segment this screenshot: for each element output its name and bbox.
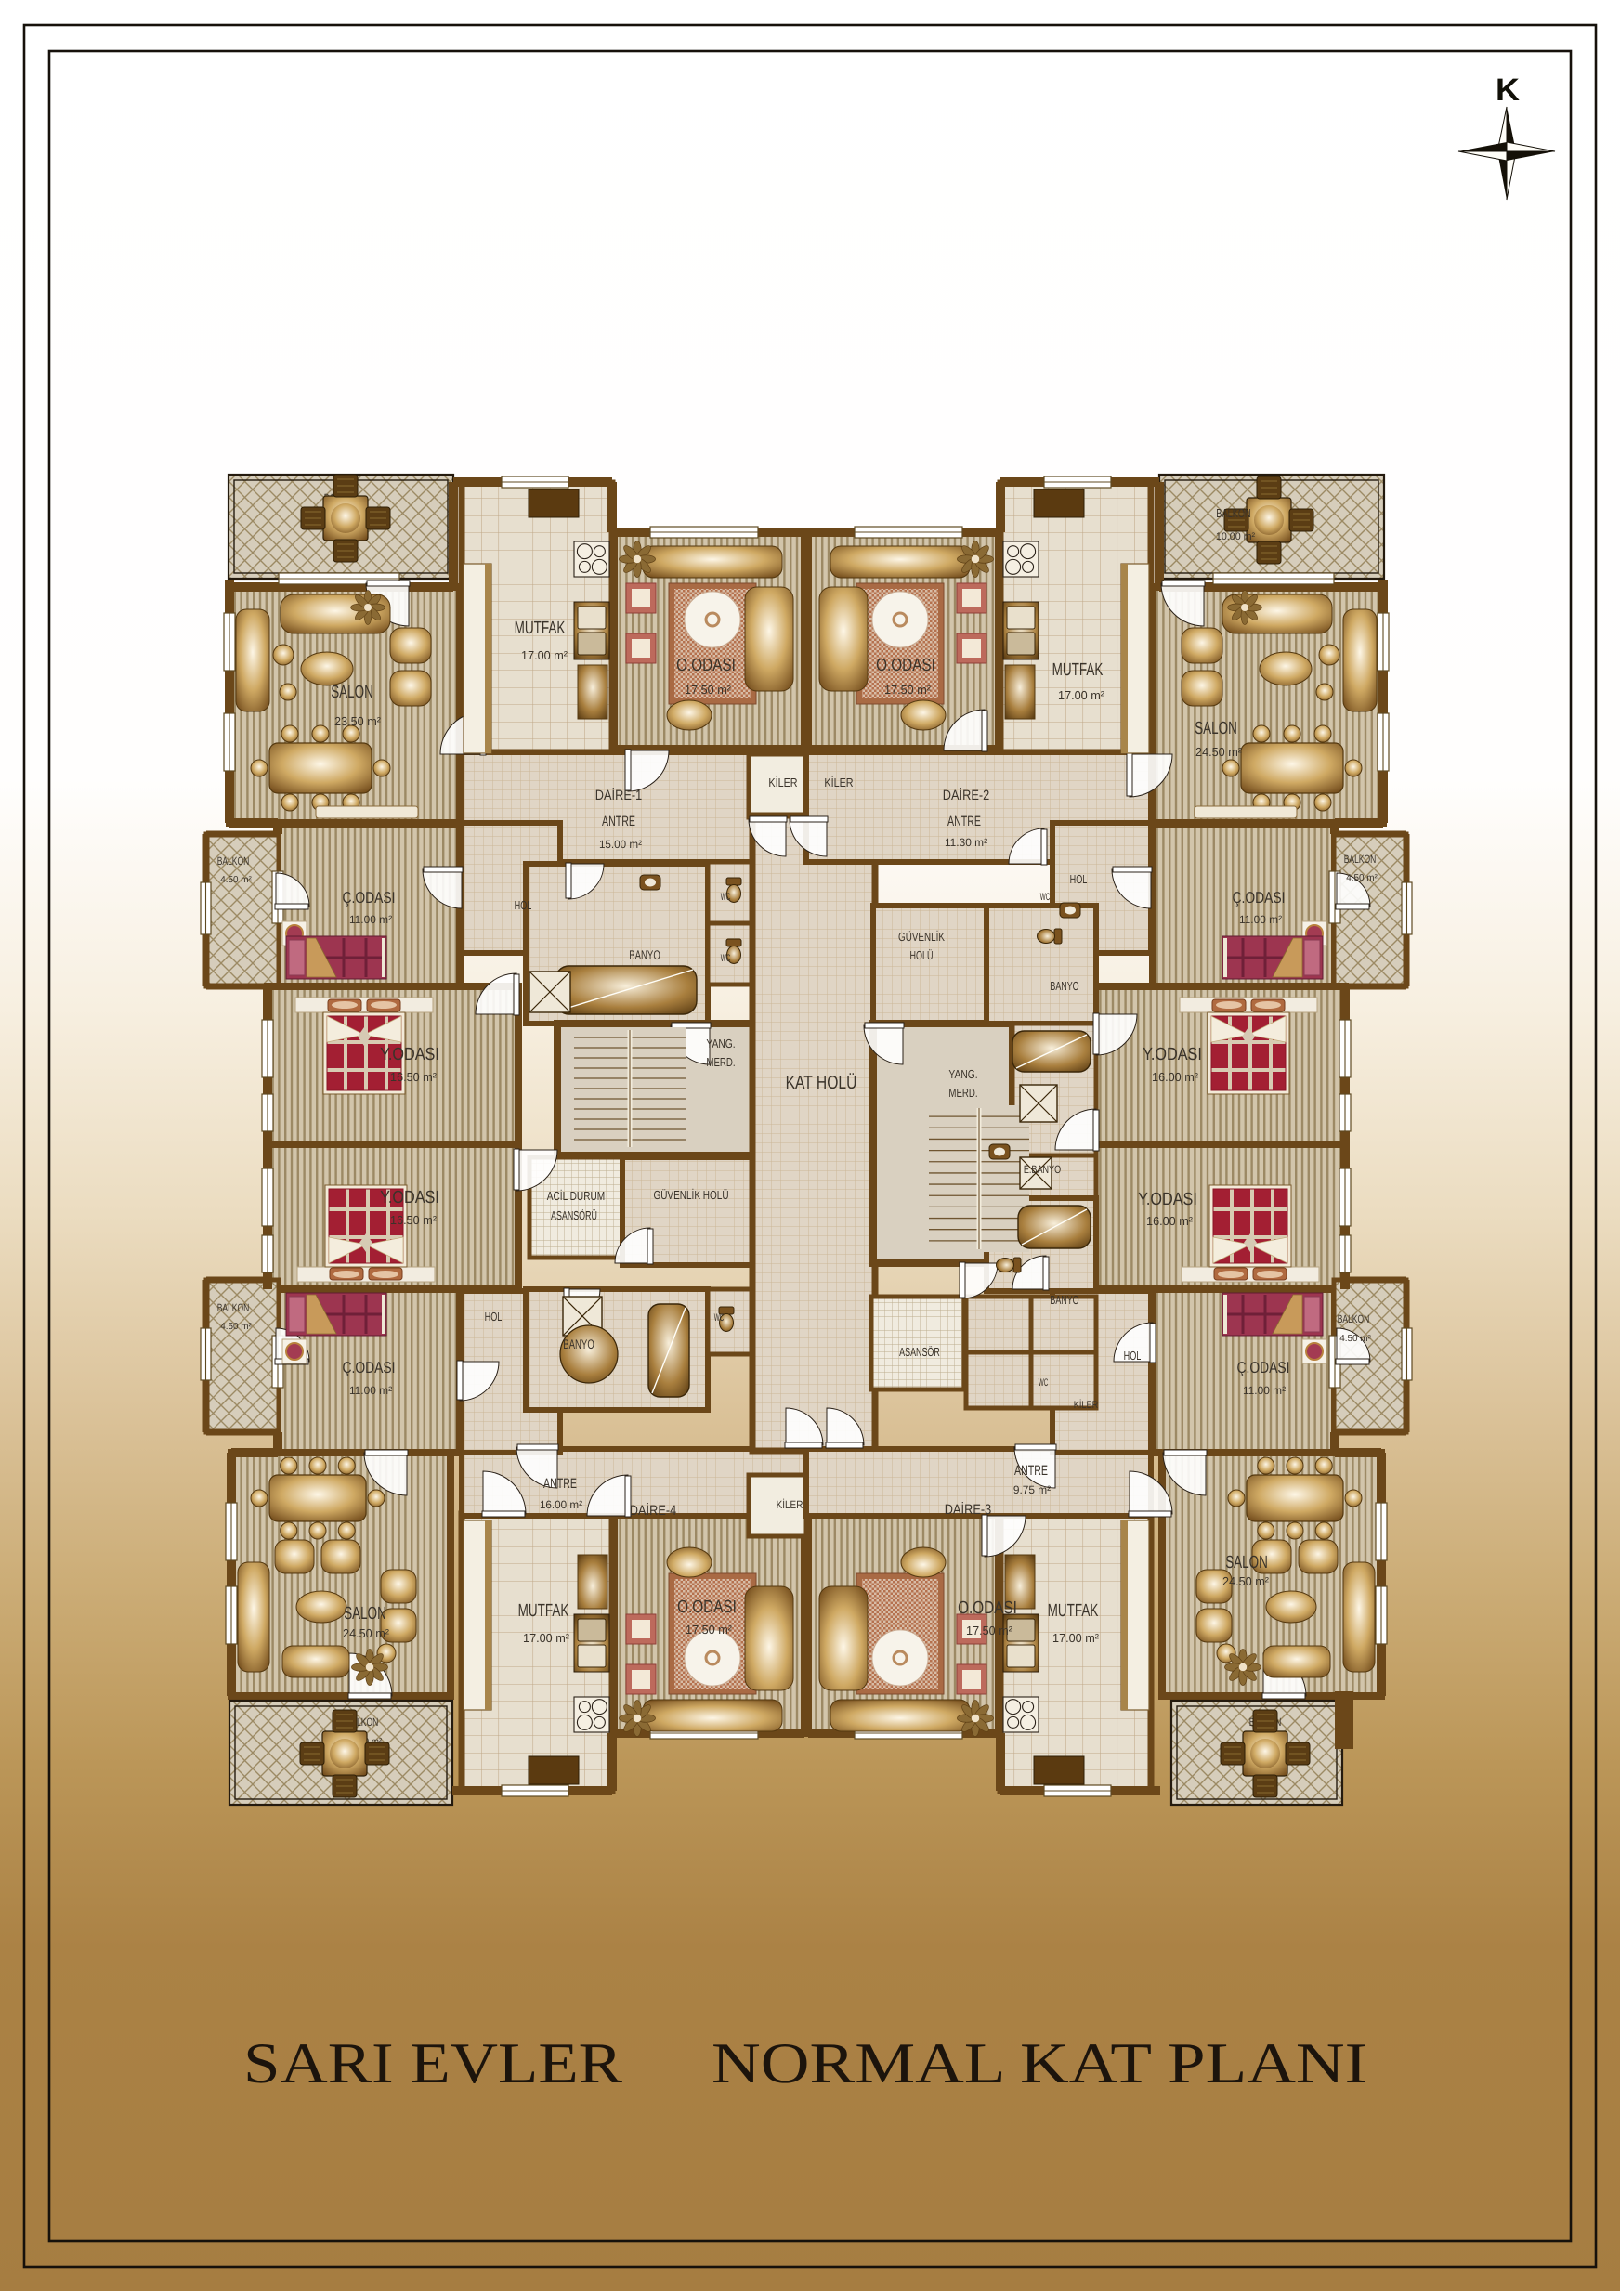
- svg-text:17.00 m²: 17.00 m²: [1058, 688, 1105, 702]
- svg-text:O.ODASI: O.ODASI: [876, 656, 935, 675]
- svg-text:17.50 m²: 17.50 m²: [686, 1623, 733, 1637]
- svg-text:ANTRE: ANTRE: [1014, 1463, 1048, 1479]
- svg-text:17.00 m²: 17.00 m²: [523, 1631, 570, 1645]
- svg-text:DAİRE-1: DAİRE-1: [595, 787, 642, 803]
- svg-text:4.50 m²: 4.50 m²: [1346, 873, 1378, 883]
- svg-text:BANYO: BANYO: [563, 1337, 594, 1351]
- svg-text:O.ODASI: O.ODASI: [958, 1598, 1017, 1618]
- svg-text:Y.ODASI: Y.ODASI: [380, 1045, 439, 1064]
- svg-text:BALKON: BALKON: [1338, 1312, 1370, 1325]
- svg-text:MERD.: MERD.: [948, 1086, 977, 1100]
- svg-text:4.50 m²: 4.50 m²: [1339, 1334, 1371, 1344]
- svg-text:17.00 m²: 17.00 m²: [1052, 1631, 1100, 1645]
- svg-text:11.30 m²: 11.30 m²: [945, 836, 987, 849]
- svg-text:4.50 m²: 4.50 m²: [220, 875, 252, 885]
- svg-text:HOLÜ: HOLÜ: [910, 948, 934, 962]
- svg-text:BALKON: BALKON: [217, 1301, 250, 1314]
- svg-text:4.50 m²: 4.50 m²: [220, 1322, 252, 1332]
- svg-text:HOL: HOL: [1124, 1349, 1142, 1363]
- svg-text:11.00 m²: 11.00 m²: [349, 1384, 392, 1397]
- svg-text:KAT HOLÜ: KAT HOLÜ: [786, 1073, 857, 1093]
- svg-text:MUTFAK: MUTFAK: [1048, 1601, 1099, 1621]
- svg-text:HOL: HOL: [485, 1310, 503, 1324]
- svg-text:BANYO: BANYO: [1050, 1293, 1078, 1307]
- svg-text:16.00 m²: 16.00 m²: [1146, 1214, 1194, 1228]
- svg-text:E.BANYO: E.BANYO: [1024, 1163, 1061, 1176]
- svg-text:Ç.ODASI: Ç.ODASI: [342, 1359, 395, 1376]
- svg-text:11.00 m²: 11.00 m²: [1243, 1384, 1286, 1397]
- svg-text:BALKON: BALKON: [1344, 853, 1377, 866]
- svg-text:Ç.ODASI: Ç.ODASI: [1236, 1359, 1289, 1376]
- svg-text:ASANSÖRÜ: ASANSÖRÜ: [551, 1208, 597, 1222]
- svg-text:24.50 m²: 24.50 m²: [1222, 1574, 1270, 1588]
- svg-text:BANYO: BANYO: [629, 947, 660, 962]
- svg-text:16.00 m²: 16.00 m²: [1152, 1070, 1199, 1084]
- svg-text:SALON: SALON: [1225, 1553, 1268, 1572]
- svg-text:MERD.: MERD.: [706, 1055, 735, 1069]
- svg-text:17.00 m²: 17.00 m²: [521, 648, 568, 662]
- svg-text:BALKON: BALKON: [217, 854, 250, 868]
- svg-text:KİLER: KİLER: [768, 776, 797, 789]
- svg-text:WC: WC: [721, 892, 731, 903]
- svg-text:MUTFAK: MUTFAK: [518, 1601, 569, 1621]
- svg-text:10.00 m²: 10.00 m²: [1216, 531, 1256, 542]
- svg-text:11.00 m²: 11.00 m²: [1239, 913, 1282, 926]
- svg-text:GÜVENLİK HOLÜ: GÜVENLİK HOLÜ: [653, 1188, 728, 1202]
- svg-text:9.75 m²: 9.75 m²: [1013, 1483, 1051, 1496]
- svg-text:YANG.: YANG.: [706, 1037, 735, 1050]
- svg-text:24.50 m²: 24.50 m²: [343, 1626, 390, 1640]
- svg-text:Y.ODASI: Y.ODASI: [380, 1188, 439, 1207]
- svg-text:K: K: [1496, 72, 1520, 108]
- svg-text:O.ODASI: O.ODASI: [677, 1598, 737, 1617]
- svg-text:DAİRE-3: DAİRE-3: [945, 1501, 991, 1518]
- svg-text:Y.ODASI: Y.ODASI: [1143, 1045, 1202, 1064]
- svg-text:YANG.: YANG.: [948, 1067, 977, 1081]
- svg-text:DAİRE-4: DAİRE-4: [630, 1502, 676, 1519]
- svg-text:SALON: SALON: [1195, 719, 1237, 738]
- svg-text:11.00 m²: 11.00 m²: [349, 913, 392, 926]
- svg-text:ACİL DURUM: ACİL DURUM: [547, 1189, 605, 1203]
- svg-text:16.50 m²: 16.50 m²: [390, 1070, 438, 1084]
- svg-text:BANYO: BANYO: [1050, 979, 1078, 993]
- svg-text:17.50 m²: 17.50 m²: [966, 1624, 1013, 1637]
- svg-text:NORMAL KAT PLANI: NORMAL KAT PLANI: [712, 2032, 1367, 2095]
- svg-text:Y.ODASI: Y.ODASI: [1138, 1190, 1197, 1209]
- svg-text:17.50 m²: 17.50 m²: [884, 683, 932, 697]
- svg-text:HOL: HOL: [515, 898, 532, 912]
- svg-text:MUTFAK: MUTFAK: [1052, 660, 1104, 680]
- svg-text:WC: WC: [1040, 892, 1051, 903]
- svg-text:ANTRE: ANTRE: [602, 814, 635, 829]
- svg-text:24.50 m²: 24.50 m²: [1195, 745, 1243, 759]
- svg-text:O.ODASI: O.ODASI: [676, 656, 736, 675]
- svg-text:ANTRE: ANTRE: [947, 814, 981, 829]
- svg-text:GÜVENLİK: GÜVENLİK: [898, 930, 945, 944]
- svg-text:ANTRE: ANTRE: [543, 1476, 577, 1492]
- svg-text:23.50 m²: 23.50 m²: [334, 714, 382, 728]
- svg-text:Ç.ODASI: Ç.ODASI: [1232, 889, 1285, 907]
- svg-text:16.00 m²: 16.00 m²: [540, 1498, 582, 1511]
- svg-text:17.50 m²: 17.50 m²: [685, 683, 732, 697]
- svg-text:MUTFAK: MUTFAK: [515, 619, 566, 638]
- svg-text:KİLER: KİLER: [1074, 1399, 1098, 1411]
- svg-text:SALON: SALON: [344, 1604, 386, 1624]
- svg-text:WC: WC: [1039, 1377, 1049, 1389]
- svg-text:WC: WC: [721, 953, 731, 964]
- svg-text:BALKON: BALKON: [1216, 506, 1250, 520]
- svg-text:KİLER: KİLER: [777, 1498, 803, 1511]
- svg-text:DAİRE-2: DAİRE-2: [943, 787, 989, 803]
- svg-text:ASANSÖR: ASANSÖR: [899, 1345, 940, 1359]
- svg-text:Ç.ODASI: Ç.ODASI: [342, 889, 395, 907]
- svg-text:15.00 m²: 15.00 m²: [599, 838, 642, 851]
- svg-text:HOL: HOL: [1070, 872, 1088, 886]
- svg-text:WC: WC: [714, 1312, 725, 1324]
- svg-text:SALON: SALON: [331, 683, 373, 702]
- svg-text:KİLER: KİLER: [824, 776, 853, 789]
- svg-text:SARI EVLER: SARI EVLER: [243, 2032, 623, 2095]
- svg-text:16.50 m²: 16.50 m²: [390, 1213, 438, 1227]
